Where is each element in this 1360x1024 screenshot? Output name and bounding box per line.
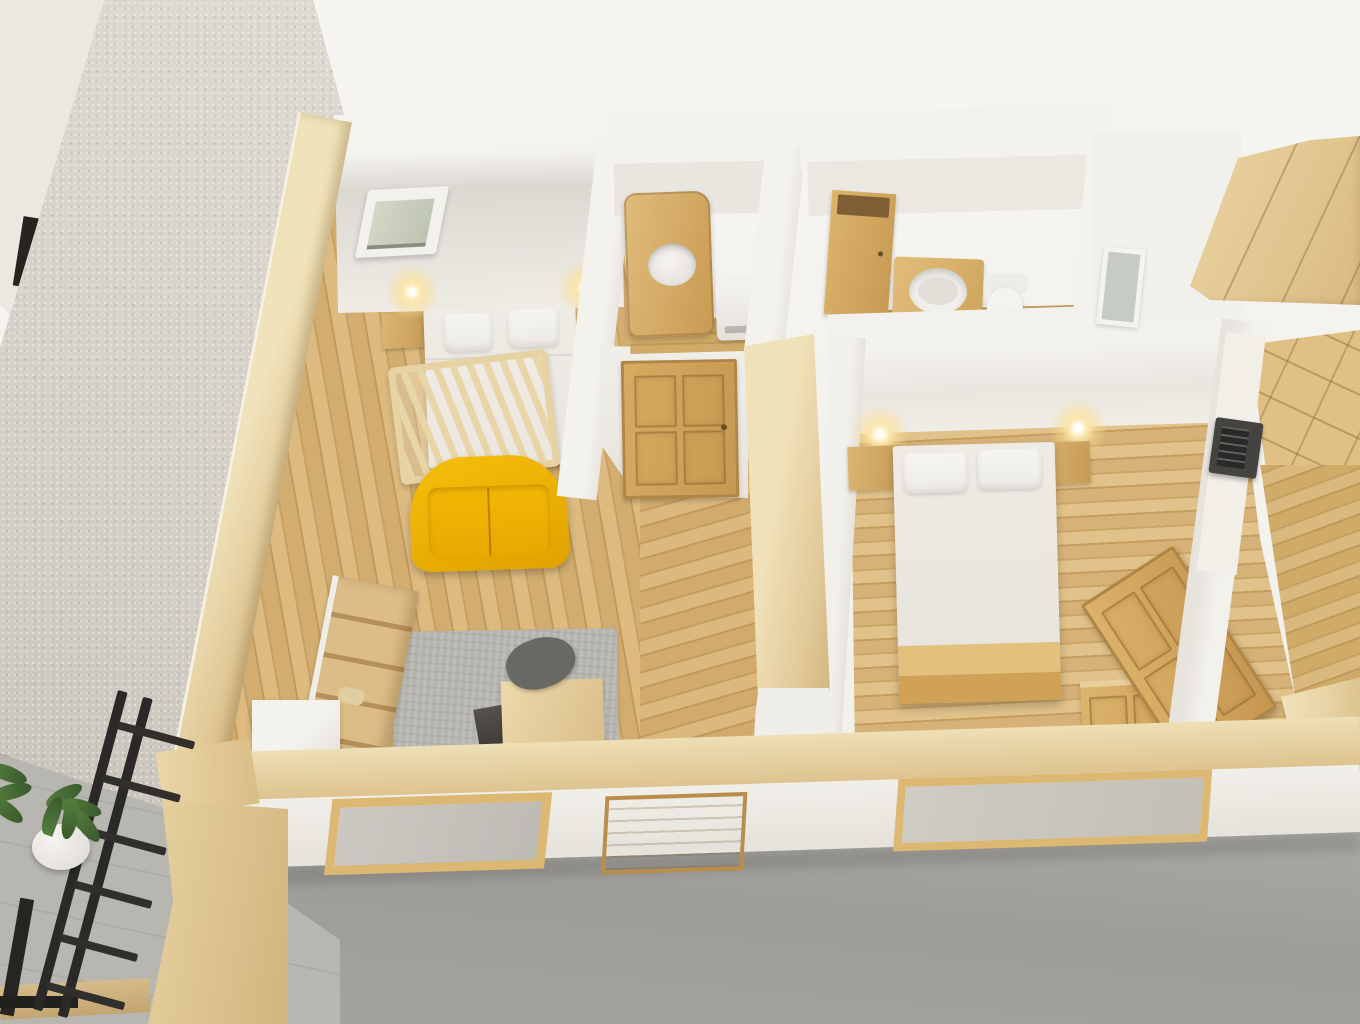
microwave-door xyxy=(1216,426,1249,470)
round-basin xyxy=(908,267,968,315)
skylight-window xyxy=(355,186,449,258)
ladder-rung xyxy=(73,880,152,908)
ladder-rung xyxy=(59,934,138,962)
wall-lamp-glow xyxy=(384,264,440,320)
pillow xyxy=(507,308,558,348)
interior-door xyxy=(621,359,739,499)
pillow xyxy=(443,312,492,352)
plant-small xyxy=(0,760,44,832)
pillow xyxy=(903,452,968,494)
double-bed-second xyxy=(893,442,1062,704)
shower-cabin xyxy=(624,191,715,338)
ladder-rung xyxy=(46,982,125,1010)
microwave xyxy=(1208,417,1263,479)
front-window-left xyxy=(324,792,552,875)
shower-opening xyxy=(647,243,696,287)
partition-wood-cap xyxy=(744,334,830,700)
wardrobe-closet-room xyxy=(1250,330,1360,475)
skylight-pane xyxy=(367,199,435,250)
apartment-model-scene xyxy=(0,0,1360,1024)
front-window-right xyxy=(893,769,1212,851)
front-entry-door xyxy=(601,792,747,875)
yellow-sofa xyxy=(408,453,570,572)
pillow xyxy=(977,448,1042,490)
closet-window xyxy=(1096,246,1146,328)
basin-bowl xyxy=(918,276,959,305)
door-knob xyxy=(721,424,727,430)
bathroom-cabinet xyxy=(824,190,896,318)
white-cabinet xyxy=(252,700,340,754)
cabinet-handle xyxy=(878,251,883,256)
ladder-rung xyxy=(116,721,195,749)
cabinet-open-top xyxy=(837,194,890,218)
bed2-frame-front xyxy=(899,672,1062,704)
